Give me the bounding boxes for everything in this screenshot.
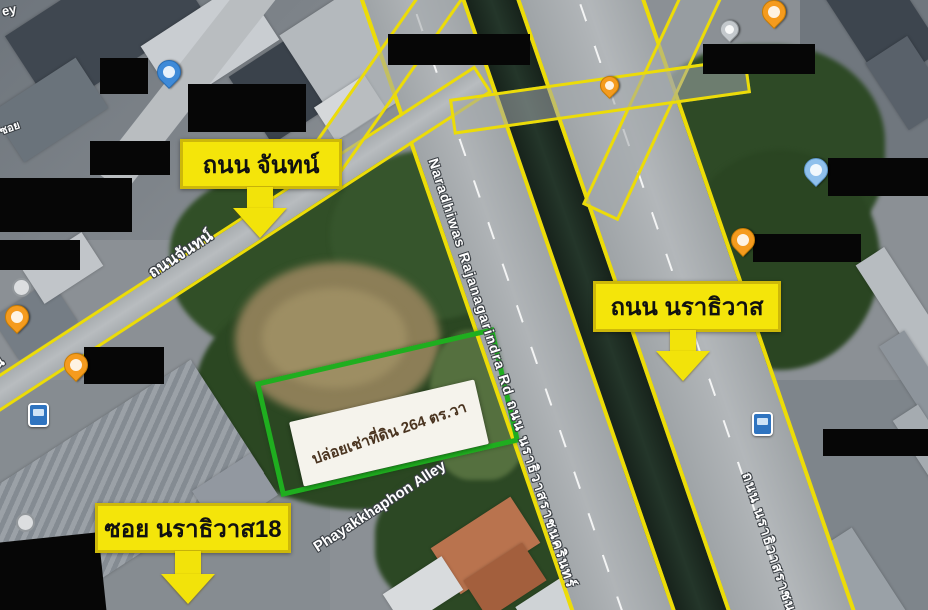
redaction-bar [100, 58, 148, 94]
redaction-bar [823, 429, 928, 456]
redaction-bar [188, 84, 306, 132]
sign-soi-arrow-head [161, 574, 215, 604]
sign-narathiwas-road-text: ถนน นราธิวาส [610, 287, 763, 326]
sign-chan-road-text: ถนน จันทน์ [203, 145, 320, 184]
road-name-alley-edge: ey [0, 1, 17, 19]
redaction-bar [703, 44, 815, 74]
sign-narathiwas-road: ถนน นราธิวาส [593, 281, 781, 332]
map-pin-orange[interactable] [757, 0, 791, 29]
sign-narathiwas-arrow-stem [670, 330, 696, 352]
redaction-bar [753, 234, 861, 262]
sign-chan-road: ถนน จันทน์ [180, 139, 342, 189]
transit-stop-icon[interactable] [752, 412, 773, 436]
redaction-bar [0, 532, 107, 610]
satellite-map: ปล่อยเช่าที่ดิน 264 ตร.วา ถนนจันทน์ ถนนจ… [0, 0, 928, 610]
transit-stop-icon[interactable] [28, 403, 49, 427]
redaction-bar [0, 178, 132, 232]
redaction-bar [0, 240, 80, 270]
map-pin-gray[interactable] [716, 16, 743, 43]
sign-soi-arrow-stem [175, 551, 201, 575]
sign-narathiwas-arrow-head [656, 351, 710, 381]
sign-soi-narathiwas18: ซอย นราธิวาส18 [95, 503, 291, 553]
sign-chan-arrow-stem [247, 187, 273, 209]
redaction-bar [388, 34, 530, 65]
redaction-bar [828, 158, 928, 196]
redaction-bar [84, 347, 164, 384]
sign-soi-narathiwas18-text: ซอย นราธิวาส18 [104, 509, 281, 548]
poi-dot[interactable] [12, 278, 31, 297]
sign-chan-arrow-head [233, 208, 287, 238]
redaction-bar [90, 141, 170, 175]
poi-dot[interactable] [16, 513, 35, 532]
